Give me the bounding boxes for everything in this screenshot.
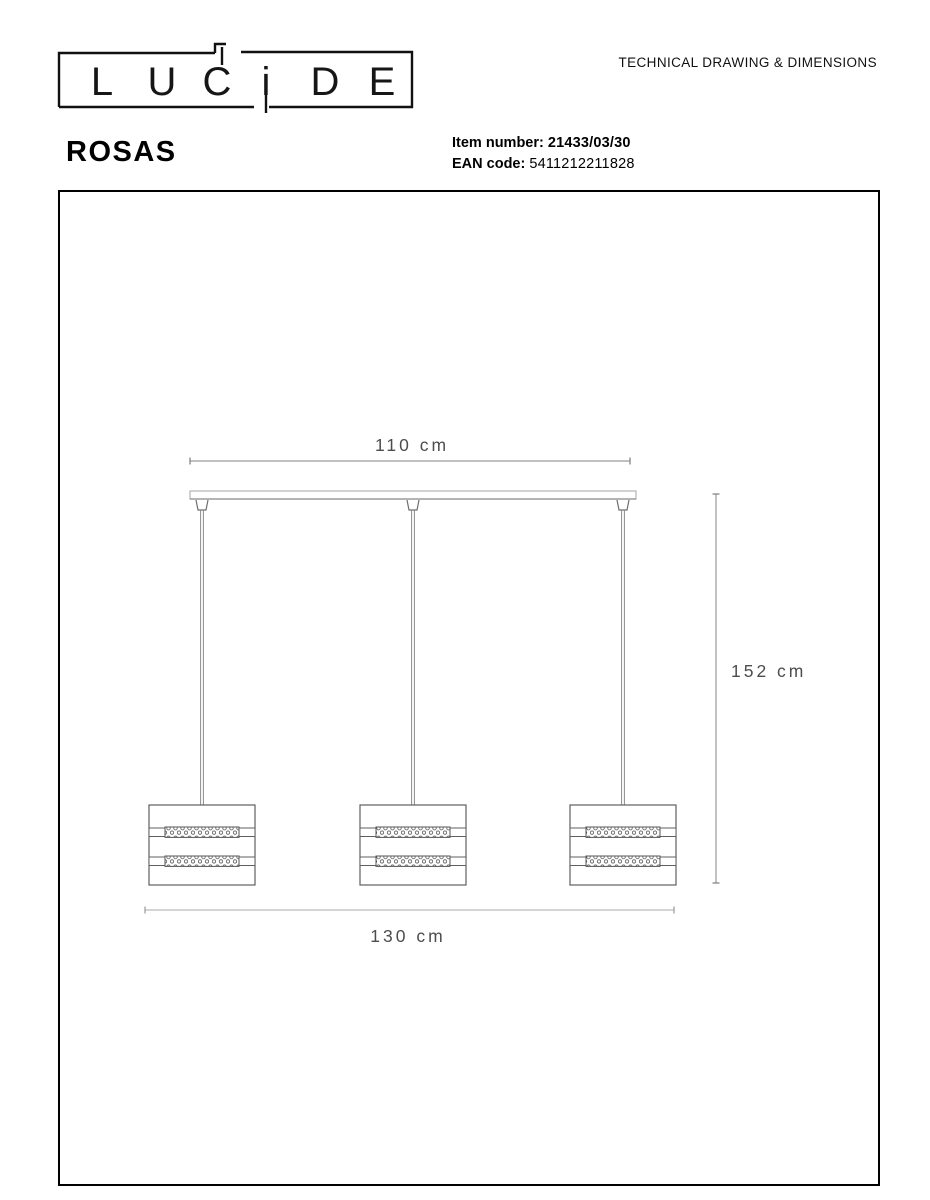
suspension-cords — [201, 510, 625, 805]
logo-letter: U — [148, 60, 177, 104]
crystal-band — [165, 827, 239, 837]
item-number-label: Item number: — [452, 135, 544, 151]
pendant-shade-middle — [360, 805, 466, 885]
logo-letter: D — [311, 60, 340, 104]
cord-grips — [196, 500, 629, 510]
crystal-band — [376, 827, 450, 837]
technical-drawing: 110 cm — [60, 192, 878, 1184]
doc-title: TECHNICAL DRAWING & DIMENSIONS — [618, 55, 877, 70]
brand-logo: L U C i D E — [55, 40, 420, 120]
cord-grip — [617, 500, 629, 510]
pendant-shade-left — [149, 805, 255, 885]
item-number-value: 21433/03/30 — [548, 135, 631, 151]
item-number-row: Item number:21433/03/30 — [452, 133, 635, 154]
dimension-top-label: 110 cm — [375, 435, 449, 455]
brand-logo-graphic: L U C i D E — [55, 40, 420, 120]
dimension-bottom: 130 cm — [145, 907, 674, 947]
ean-value: 5411212211828 — [529, 156, 634, 172]
dimension-bottom-label: 130 cm — [370, 926, 445, 946]
dimension-right: 152 cm — [713, 494, 807, 883]
ceiling-canopy — [190, 491, 636, 499]
logo-letters: L U C i D E — [91, 60, 395, 104]
dimension-top: 110 cm — [190, 435, 630, 465]
dimension-right-label: 152 cm — [731, 661, 806, 681]
crystal-band — [376, 856, 450, 866]
logo-letter: L — [91, 60, 113, 104]
drawing-frame: 110 cm — [58, 190, 880, 1186]
logo-letter: C — [203, 60, 232, 104]
item-info-block: Item number:21433/03/30 EAN code:5411212… — [452, 133, 635, 175]
logo-letter: E — [369, 60, 396, 104]
ean-row: EAN code:5411212211828 — [452, 154, 635, 175]
cord-grip — [196, 500, 208, 510]
logo-letter: i — [262, 60, 271, 104]
ean-label: EAN code: — [452, 156, 525, 172]
pendant-shade-right — [570, 805, 676, 885]
cord-grip — [407, 500, 419, 510]
spec-sheet-page: L U C i D E ROSAS TECHNICAL DRAWING & DI… — [0, 0, 930, 1200]
product-name: ROSAS — [66, 136, 177, 169]
crystal-band — [586, 856, 660, 866]
crystal-band — [165, 856, 239, 866]
crystal-band — [586, 827, 660, 837]
